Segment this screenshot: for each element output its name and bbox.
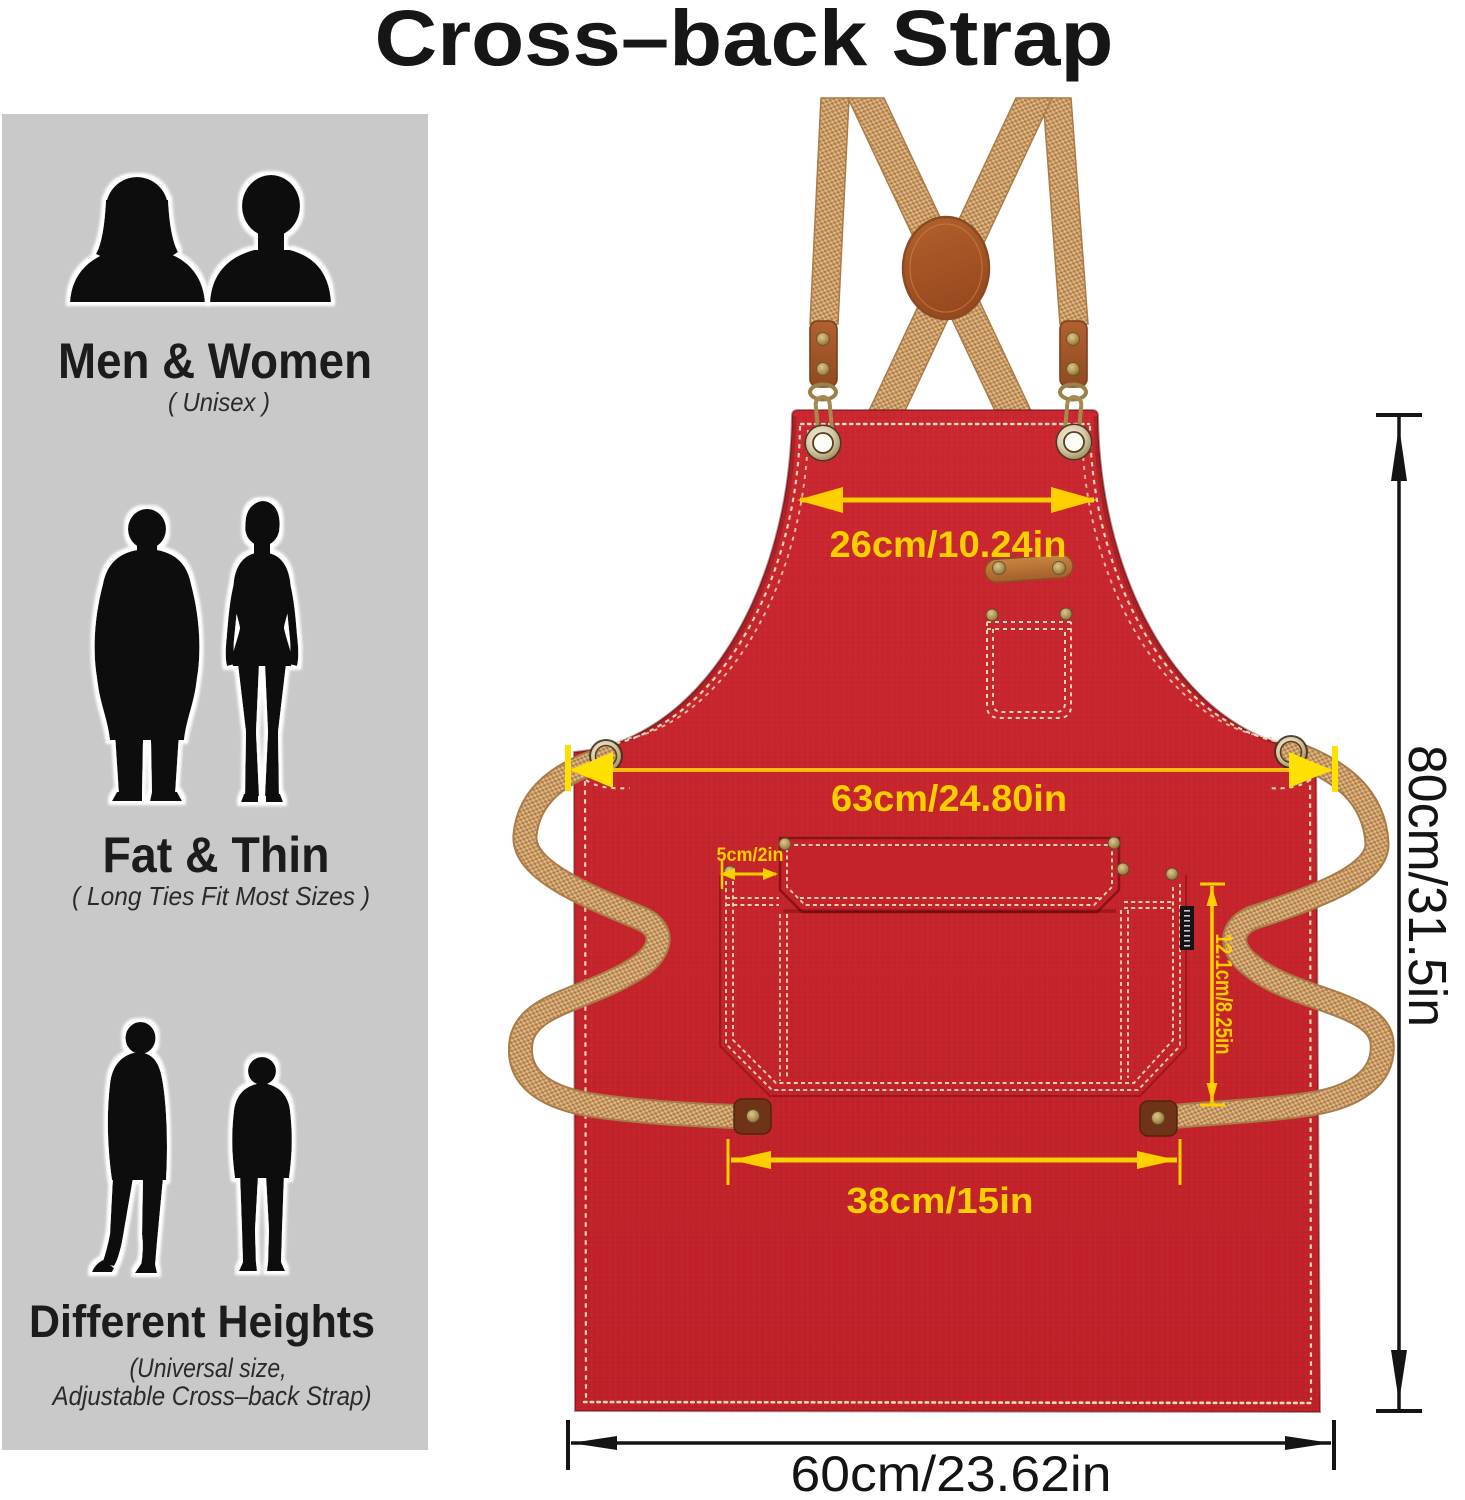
svg-text:80cm/31.5in: 80cm/31.5in — [1397, 745, 1457, 1027]
svg-text:12.1cm/8.25in: 12.1cm/8.25in — [1211, 934, 1237, 1055]
svg-text:60cm/23.62in: 60cm/23.62in — [791, 1446, 1112, 1500]
svg-text:( Long Ties Fit Most Sizes ): ( Long Ties Fit Most Sizes ) — [72, 881, 370, 911]
svg-text:5cm/2in: 5cm/2in — [717, 845, 784, 866]
svg-text:Adjustable Cross–back Strap): Adjustable Cross–back Strap) — [51, 1381, 372, 1411]
svg-text:38cm/15in: 38cm/15in — [847, 1180, 1034, 1221]
svg-text:(Universal size,: (Universal size, — [130, 1353, 287, 1383]
svg-text:63cm/24.80in: 63cm/24.80in — [831, 778, 1067, 819]
svg-text:26cm/10.24in: 26cm/10.24in — [830, 524, 1067, 565]
svg-text:Fat & Thin: Fat & Thin — [103, 827, 330, 883]
svg-text:Different Heights: Different Heights — [29, 1296, 375, 1347]
svg-text:Cross–back Strap: Cross–back Strap — [375, 0, 1114, 82]
svg-text:Men & Women: Men & Women — [58, 333, 372, 389]
svg-text:( Unisex ): ( Unisex ) — [168, 387, 270, 417]
